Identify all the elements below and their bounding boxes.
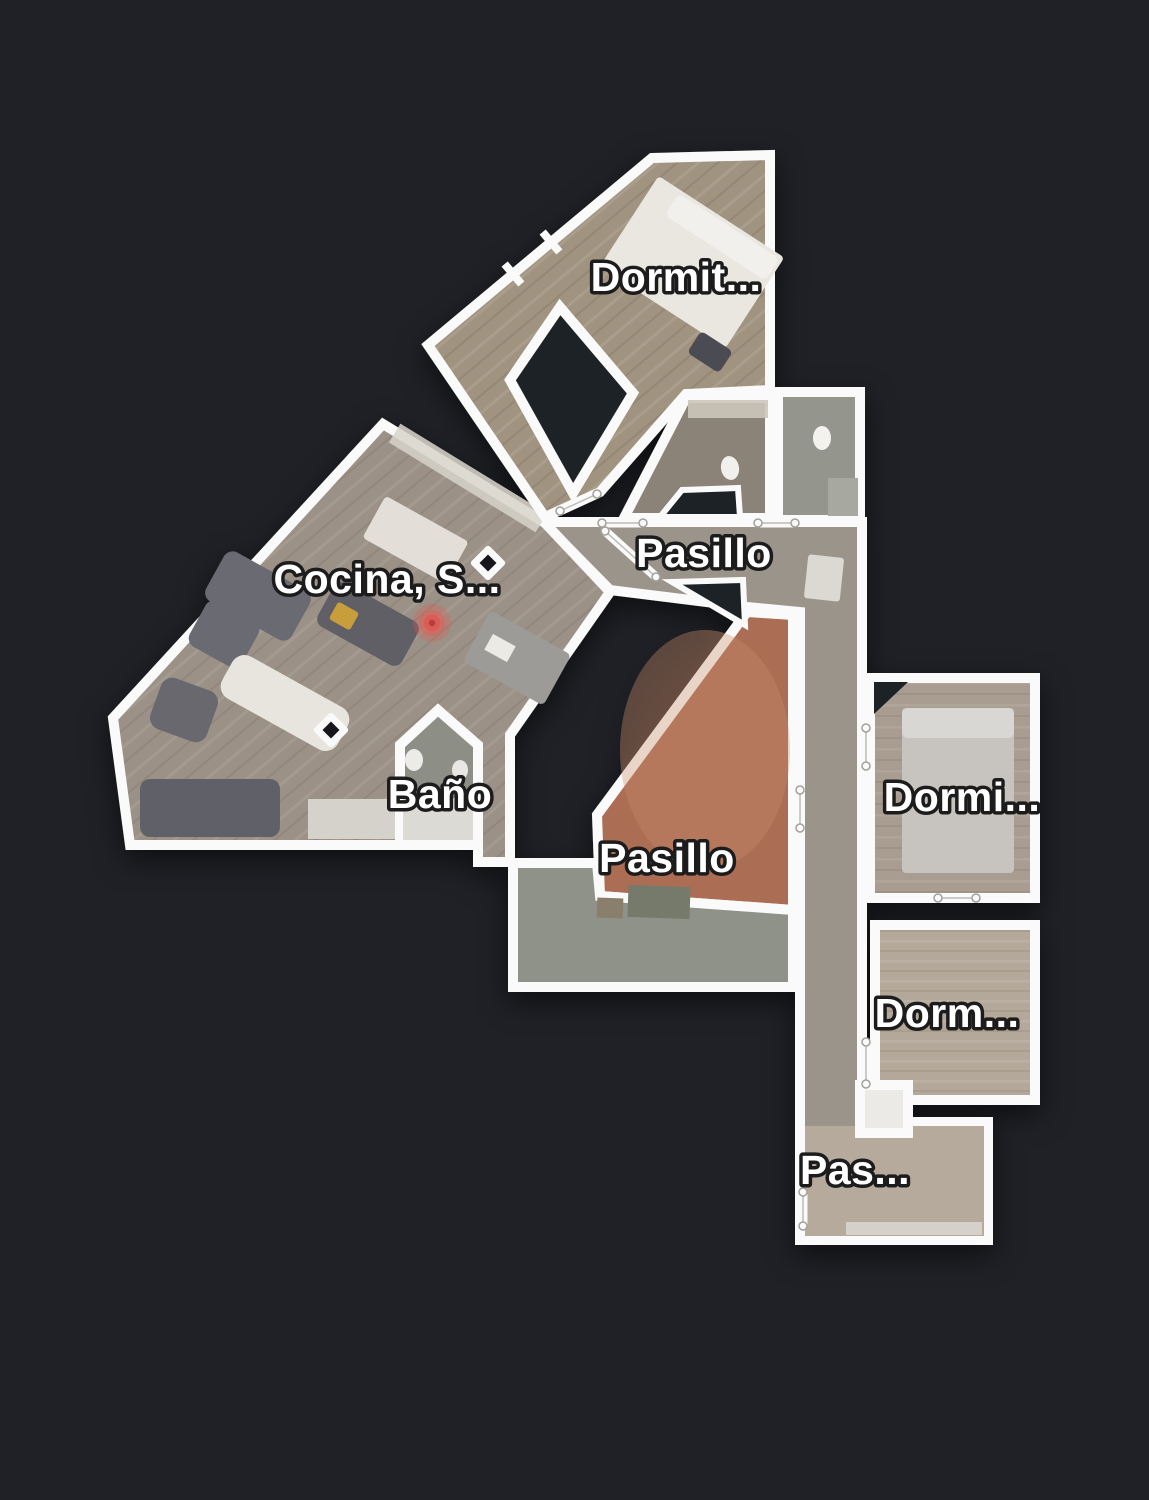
door-icon <box>754 519 799 527</box>
room-label-pasillo-3[interactable]: Pas... <box>800 1147 910 1193</box>
strip-laundry <box>804 554 844 602</box>
bed-2-pillows <box>902 708 1014 738</box>
bath-small-counter <box>688 400 768 418</box>
door-icon <box>934 894 980 902</box>
tv-unit <box>308 799 396 839</box>
room-label-bano[interactable]: Baño <box>388 771 493 817</box>
room-label-cocina-salon[interactable]: Cocina, S... <box>274 556 501 602</box>
pas-baseboard <box>846 1222 982 1235</box>
door-icon <box>862 1038 870 1088</box>
door-icon <box>796 786 804 832</box>
position-marker-icon[interactable] <box>413 604 451 642</box>
toilet-2 <box>813 426 831 450</box>
patio-highlight <box>620 630 790 870</box>
doormat-1 <box>627 885 690 919</box>
closet-box <box>860 1085 908 1133</box>
floorplan-canvas: Dormit... Pasillo Cocina, S... Baño Pasi… <box>0 0 1149 1500</box>
door-icon <box>598 519 647 527</box>
shower <box>828 478 858 516</box>
doormat-2 <box>597 898 624 919</box>
room-label-pasillo-1[interactable]: Pasillo <box>636 530 772 576</box>
room-label-dormitorio-1[interactable]: Dormit... <box>591 254 762 300</box>
room-label-dormitorio-2[interactable]: Dormi... <box>884 774 1041 820</box>
sofa-bottom <box>140 779 280 837</box>
room-label-pasillo-2[interactable]: Pasillo <box>599 835 735 881</box>
door-icon <box>799 1188 807 1230</box>
toilet-3 <box>405 749 423 771</box>
door-icon <box>862 724 870 770</box>
room-label-dormitorio-3[interactable]: Dorm... <box>875 990 1020 1036</box>
